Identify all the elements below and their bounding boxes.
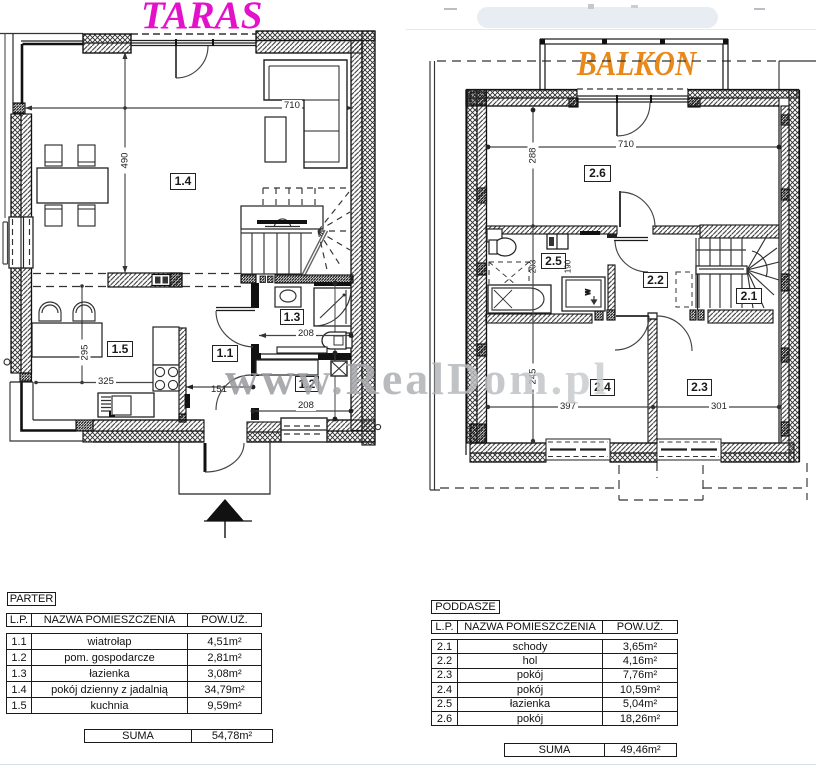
svg-text:w: w [583,289,592,296]
